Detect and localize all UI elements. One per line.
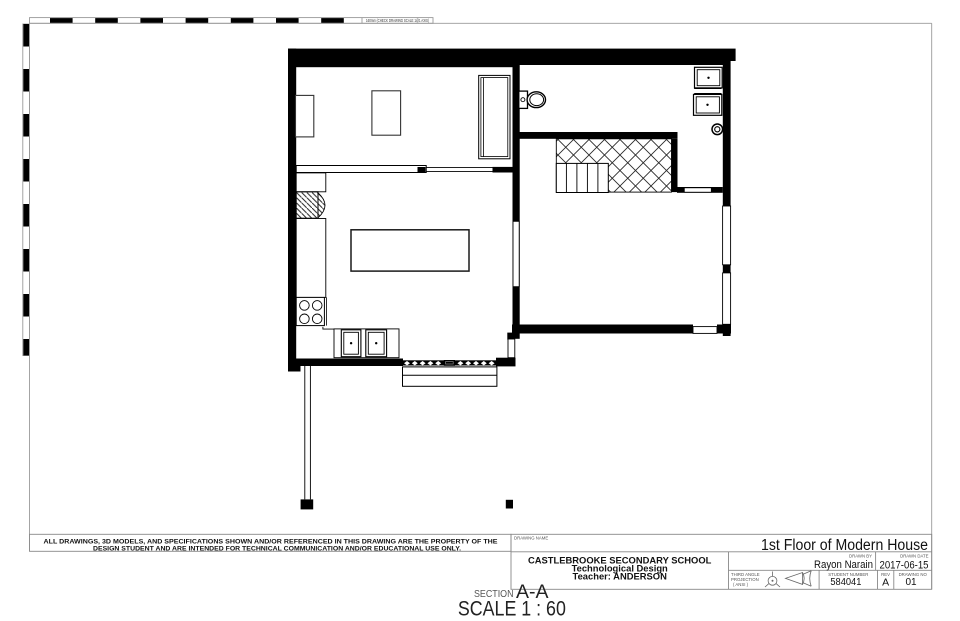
svg-text:Rayon Narain: Rayon Narain [814,559,873,571]
svg-text:( ANSI ): ( ANSI ) [733,582,749,587]
svg-text:2017-06-15: 2017-06-15 [880,559,929,571]
svg-text:160mm (CHECK DRAWING SCALE 1@1: 160mm (CHECK DRAWING SCALE 1@1 AXIS) [366,18,429,23]
svg-text:SCALE 1 : 60: SCALE 1 : 60 [458,596,566,620]
svg-text:ALL DRAWINGS, 3D MODELS, AND S: ALL DRAWINGS, 3D MODELS, AND SPECIFICATI… [44,538,499,545]
svg-text:DESIGN STUDENT AND ARE INTENDE: DESIGN STUDENT AND ARE INTENDED FOR TECH… [93,545,461,552]
svg-text:Teacher: ANDERSON: Teacher: ANDERSON [573,571,668,582]
svg-text:584041: 584041 [830,577,861,588]
svg-text:A: A [882,576,889,588]
svg-text:01: 01 [905,577,917,588]
svg-text:1st Floor of Modern House: 1st Floor of Modern House [761,537,928,554]
svg-text:DRAWN DATE: DRAWN DATE [900,554,929,559]
svg-text:DRAWN BY: DRAWN BY [849,554,872,559]
svg-text:DRAWING NAME: DRAWING NAME [514,536,548,541]
